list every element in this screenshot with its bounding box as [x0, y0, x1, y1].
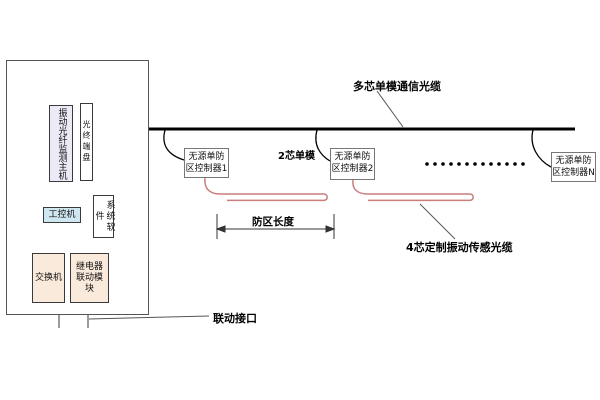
network-switch-box: 交换机 — [32, 253, 65, 303]
drop-fiber-label: 2芯单模 — [278, 147, 315, 162]
zone-controller-n: 无源单防区控制器N — [551, 152, 596, 182]
sensing-cable-zone2 — [353, 180, 473, 200]
vibration-fiber-host-box: 振动光纤监测主机 — [49, 105, 73, 182]
relay-linkage-module-box: 继电器联动模块 — [70, 253, 109, 303]
drop-fiber-2 — [316, 130, 330, 161]
continuation-dots — [425, 162, 525, 166]
sensing-cables — [205, 178, 473, 200]
optical-terminal-panel-box: 光终端盘 — [80, 103, 93, 181]
dim-arrow-right — [326, 226, 334, 232]
sensing-cable-label: 4芯定制振动传感光缆 — [406, 239, 513, 255]
drop-fiber-1 — [164, 130, 184, 160]
dim-arrow-left — [217, 226, 225, 232]
sensing-cable-zone1 — [205, 178, 327, 200]
linkage-port-label: 联动接口 — [213, 310, 257, 326]
industrial-pc-box: 工控机 — [43, 207, 81, 223]
zone-length-label: 防区长度 — [252, 214, 294, 229]
trunk-cable-label: 多芯单模通信光缆 — [353, 78, 441, 94]
zone-controller-1: 无源单防区控制器1 — [184, 148, 229, 178]
pointer-sensing-cable — [420, 204, 455, 239]
drop-fiber-n — [532, 130, 551, 167]
pointer-trunk-cable — [377, 91, 403, 127]
diagram-canvas: 振动光纤监测主机 光终端盘 工控机 系统软件 交换机 继电器联动模块 无源单防区… — [0, 0, 600, 400]
zone-controller-2: 无源单防区控制器2 — [330, 148, 375, 180]
pointer-linkage-port — [89, 316, 209, 319]
system-software-box: 系统软件 — [93, 195, 114, 238]
